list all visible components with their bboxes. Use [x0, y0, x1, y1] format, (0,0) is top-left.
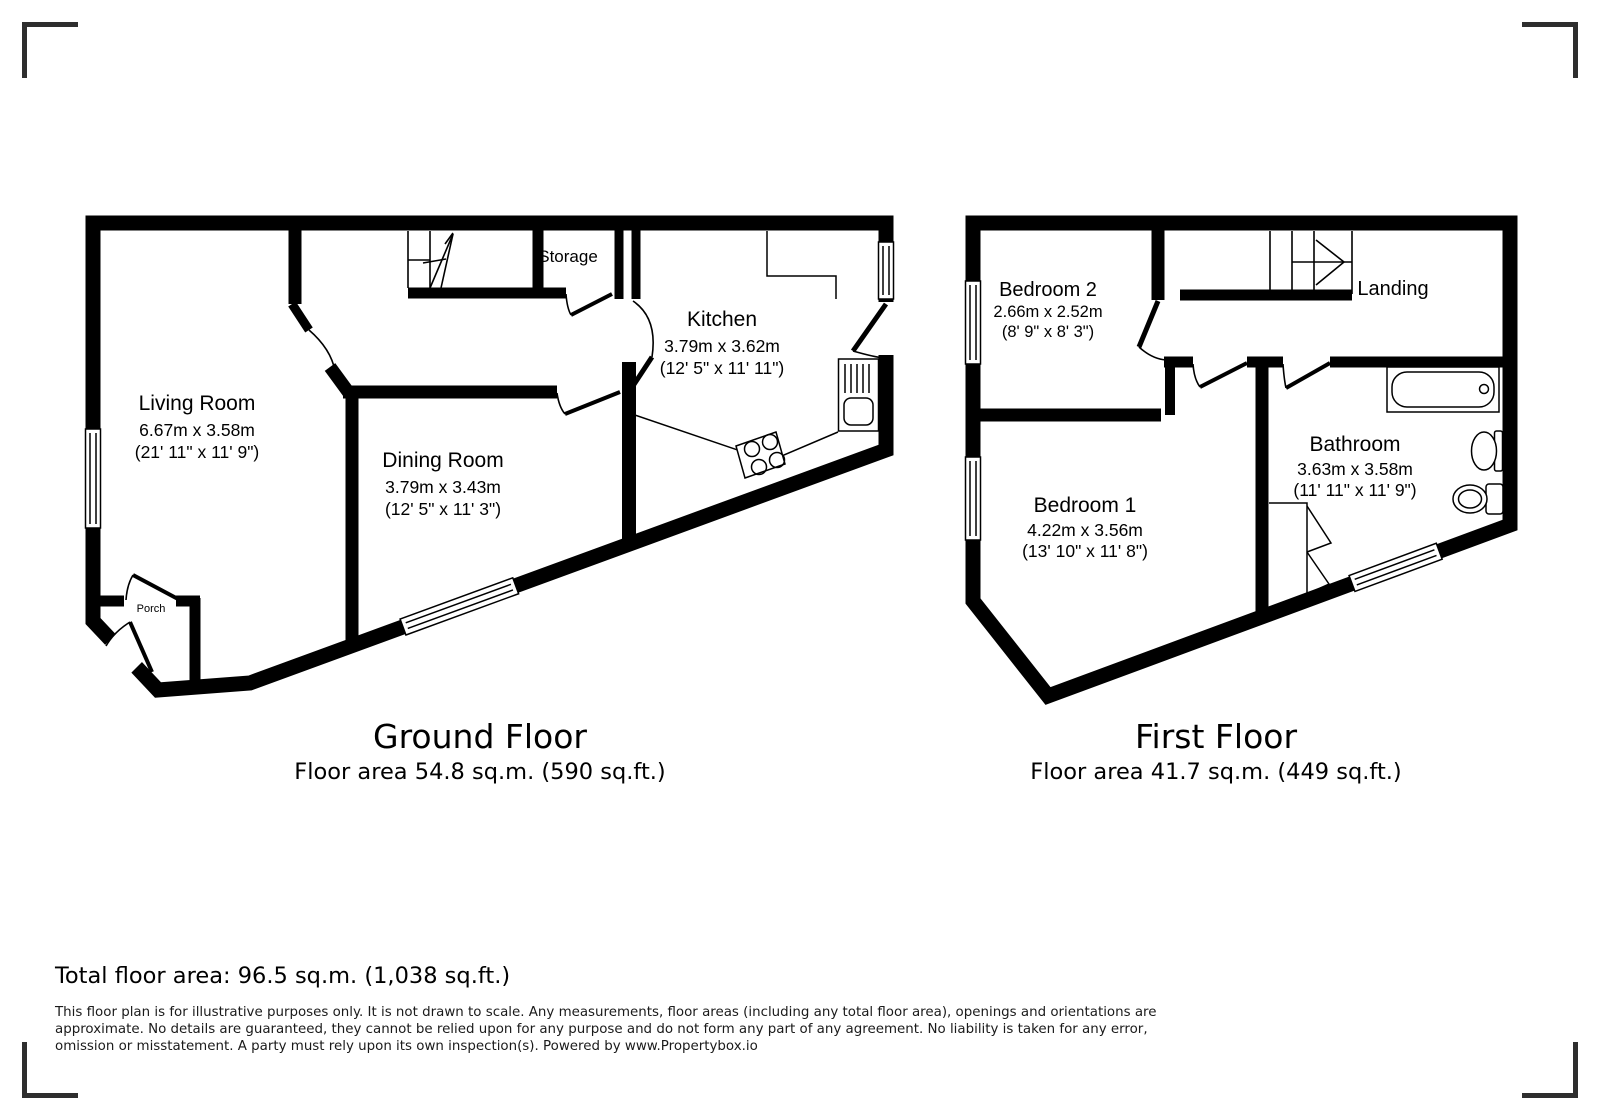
landing-label: Landing	[1357, 278, 1428, 302]
bedroom1-window-icon	[966, 457, 981, 540]
dining-room-dims-m: 3.79m x 3.43m	[385, 477, 501, 498]
ground-floor-area: Floor area 54.8 sq.m. (590 sq.ft.)	[294, 759, 665, 786]
dining-room-label: Dining Room	[382, 449, 503, 474]
kitchen-dims-m: 3.79m x 3.62m	[664, 336, 780, 357]
dining-room-dims-ft: (12' 5" x 11' 3")	[385, 499, 501, 520]
bedroom1-dims-ft: (13' 10" x 11' 8")	[1022, 541, 1148, 562]
disclaimer-line-2: approximate. No details are guaranteed, …	[55, 1021, 1148, 1038]
floorplan-page: Living Room 6.67m x 3.58m (21' 11" x 11'…	[0, 0, 1600, 1119]
ground-floor-title: Ground Floor	[373, 718, 587, 757]
bathtub-icon	[1387, 367, 1499, 412]
bathroom-dims-ft: (11' 11" x 11' 9")	[1293, 480, 1416, 501]
bedroom1-dims-m: 4.22m x 3.56m	[1027, 520, 1143, 541]
kitchen-sink-icon	[839, 359, 879, 431]
living-room-label: Living Room	[139, 392, 256, 417]
bathroom-label: Bathroom	[1309, 433, 1400, 458]
bedroom2-label: Bedroom 2	[999, 279, 1097, 303]
total-floor-area: Total floor area: 96.5 sq.m. (1,038 sq.f…	[55, 963, 510, 989]
first-floor-area: Floor area 41.7 sq.m. (449 sq.ft.)	[1030, 759, 1401, 786]
bathroom-dims-m: 3.63m x 3.58m	[1297, 459, 1413, 480]
disclaimer-line-1: This floor plan is for illustrative purp…	[55, 1004, 1157, 1021]
storage-label: Storage	[538, 247, 598, 267]
first-floor-title: First Floor	[1135, 718, 1297, 757]
kitchen-label: Kitchen	[687, 308, 757, 333]
bedroom2-dims-m: 2.66m x 2.52m	[993, 303, 1102, 322]
living-room-window-icon	[86, 429, 101, 528]
kitchen-window-icon	[879, 242, 894, 299]
bedroom2-dims-ft: (8' 9" x 8' 3")	[1002, 323, 1094, 342]
kitchen-dims-ft: (12' 5" x 11' 11")	[660, 358, 785, 379]
basin-icon	[1472, 431, 1503, 471]
floor-plan-canvas	[0, 0, 1600, 1119]
porch-label: Porch	[137, 603, 166, 616]
disclaimer-line-3: omission or misstatement. A party must r…	[55, 1038, 758, 1055]
bedroom1-label: Bedroom 1	[1034, 494, 1137, 519]
living-room-dims-m: 6.67m x 3.58m	[139, 420, 255, 441]
living-room-dims-ft: (21' 11" x 11' 9")	[135, 442, 260, 463]
toilet-icon	[1453, 484, 1503, 514]
bedroom2-window-icon	[966, 281, 981, 364]
